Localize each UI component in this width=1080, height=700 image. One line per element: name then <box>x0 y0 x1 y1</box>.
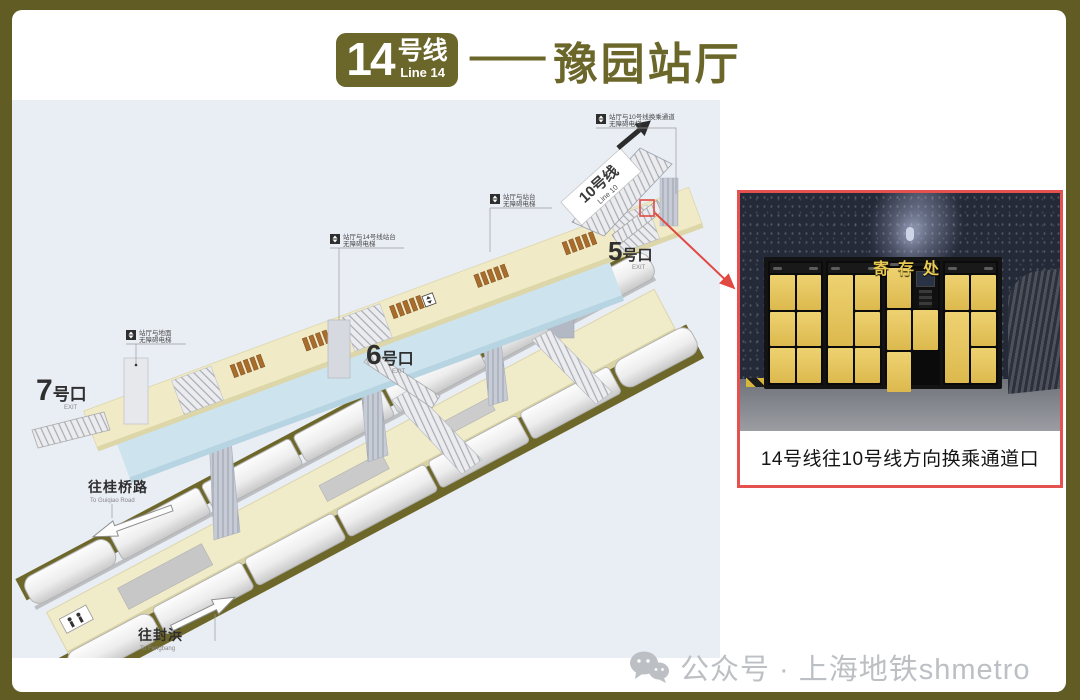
svg-text:无障碍电梯: 无障碍电梯 <box>609 119 642 128</box>
elevator-tower-exit7 <box>124 358 148 424</box>
transfer-passage-photo-card: 寄存处 14号线往10号线方向换乘通道口 <box>737 190 1063 488</box>
locker-cabinet <box>943 261 998 385</box>
page-title: 豫园站厅 <box>554 28 742 92</box>
locker-sign: 寄存处 <box>873 255 948 279</box>
ceiling-lamp <box>906 227 914 241</box>
svg-text:站厅与10号线换乘通道: 站厅与10号线换乘通道 <box>609 112 675 121</box>
watermark: 公众号 · 上海地铁shmetro <box>628 646 1031 688</box>
svg-text:To Guiqiao Road: To Guiqiao Road <box>90 498 135 504</box>
escalator-handrail <box>1008 268 1060 394</box>
svg-text:站厅与站台: 站厅与站台 <box>503 192 536 201</box>
svg-text:EXIT: EXIT <box>632 265 646 271</box>
photo-caption: 14号线往10号线方向换乘通道口 <box>740 431 1060 483</box>
svg-text:站厅与14号线站台: 站厅与14号线站台 <box>343 232 396 241</box>
svg-text:EXIT: EXIT <box>64 405 78 411</box>
svg-text:无障碍电梯: 无障碍电梯 <box>139 335 172 344</box>
elevator-tower-mid <box>328 320 350 378</box>
svg-text:站厅与地面: 站厅与地面 <box>139 328 172 337</box>
title-dash: —— <box>470 34 542 79</box>
svg-text:To Fengbang: To Fengbang <box>140 646 175 652</box>
page: 14 号线 Line 14 —— 豫园站厅 <box>0 0 1080 700</box>
svg-text:无障碍电梯: 无障碍电梯 <box>503 199 536 208</box>
svg-text:无障碍电梯: 无障碍电梯 <box>343 239 376 248</box>
locker-cabinet-terminal <box>885 261 940 385</box>
line-number: 14 <box>346 36 393 82</box>
card: 14 号线 Line 14 —— 豫园站厅 <box>12 10 1066 692</box>
line14-badge: 14 号线 Line 14 <box>336 33 457 87</box>
locker-cabinet <box>826 261 881 385</box>
svg-text:EXIT: EXIT <box>392 369 406 375</box>
watermark-text: 公众号 · 上海地铁shmetro <box>680 646 1031 688</box>
line-suffix: 号线 <box>398 39 448 64</box>
locker-cabinet <box>768 261 823 385</box>
wechat-icon <box>628 650 670 684</box>
locker-photo: 寄存处 <box>740 193 1060 431</box>
svg-text:往桂桥路: 往桂桥路 <box>88 479 148 495</box>
line-subtitle: Line 14 <box>400 66 445 79</box>
header: 14 号线 Line 14 —— 豫园站厅 <box>12 28 1066 92</box>
